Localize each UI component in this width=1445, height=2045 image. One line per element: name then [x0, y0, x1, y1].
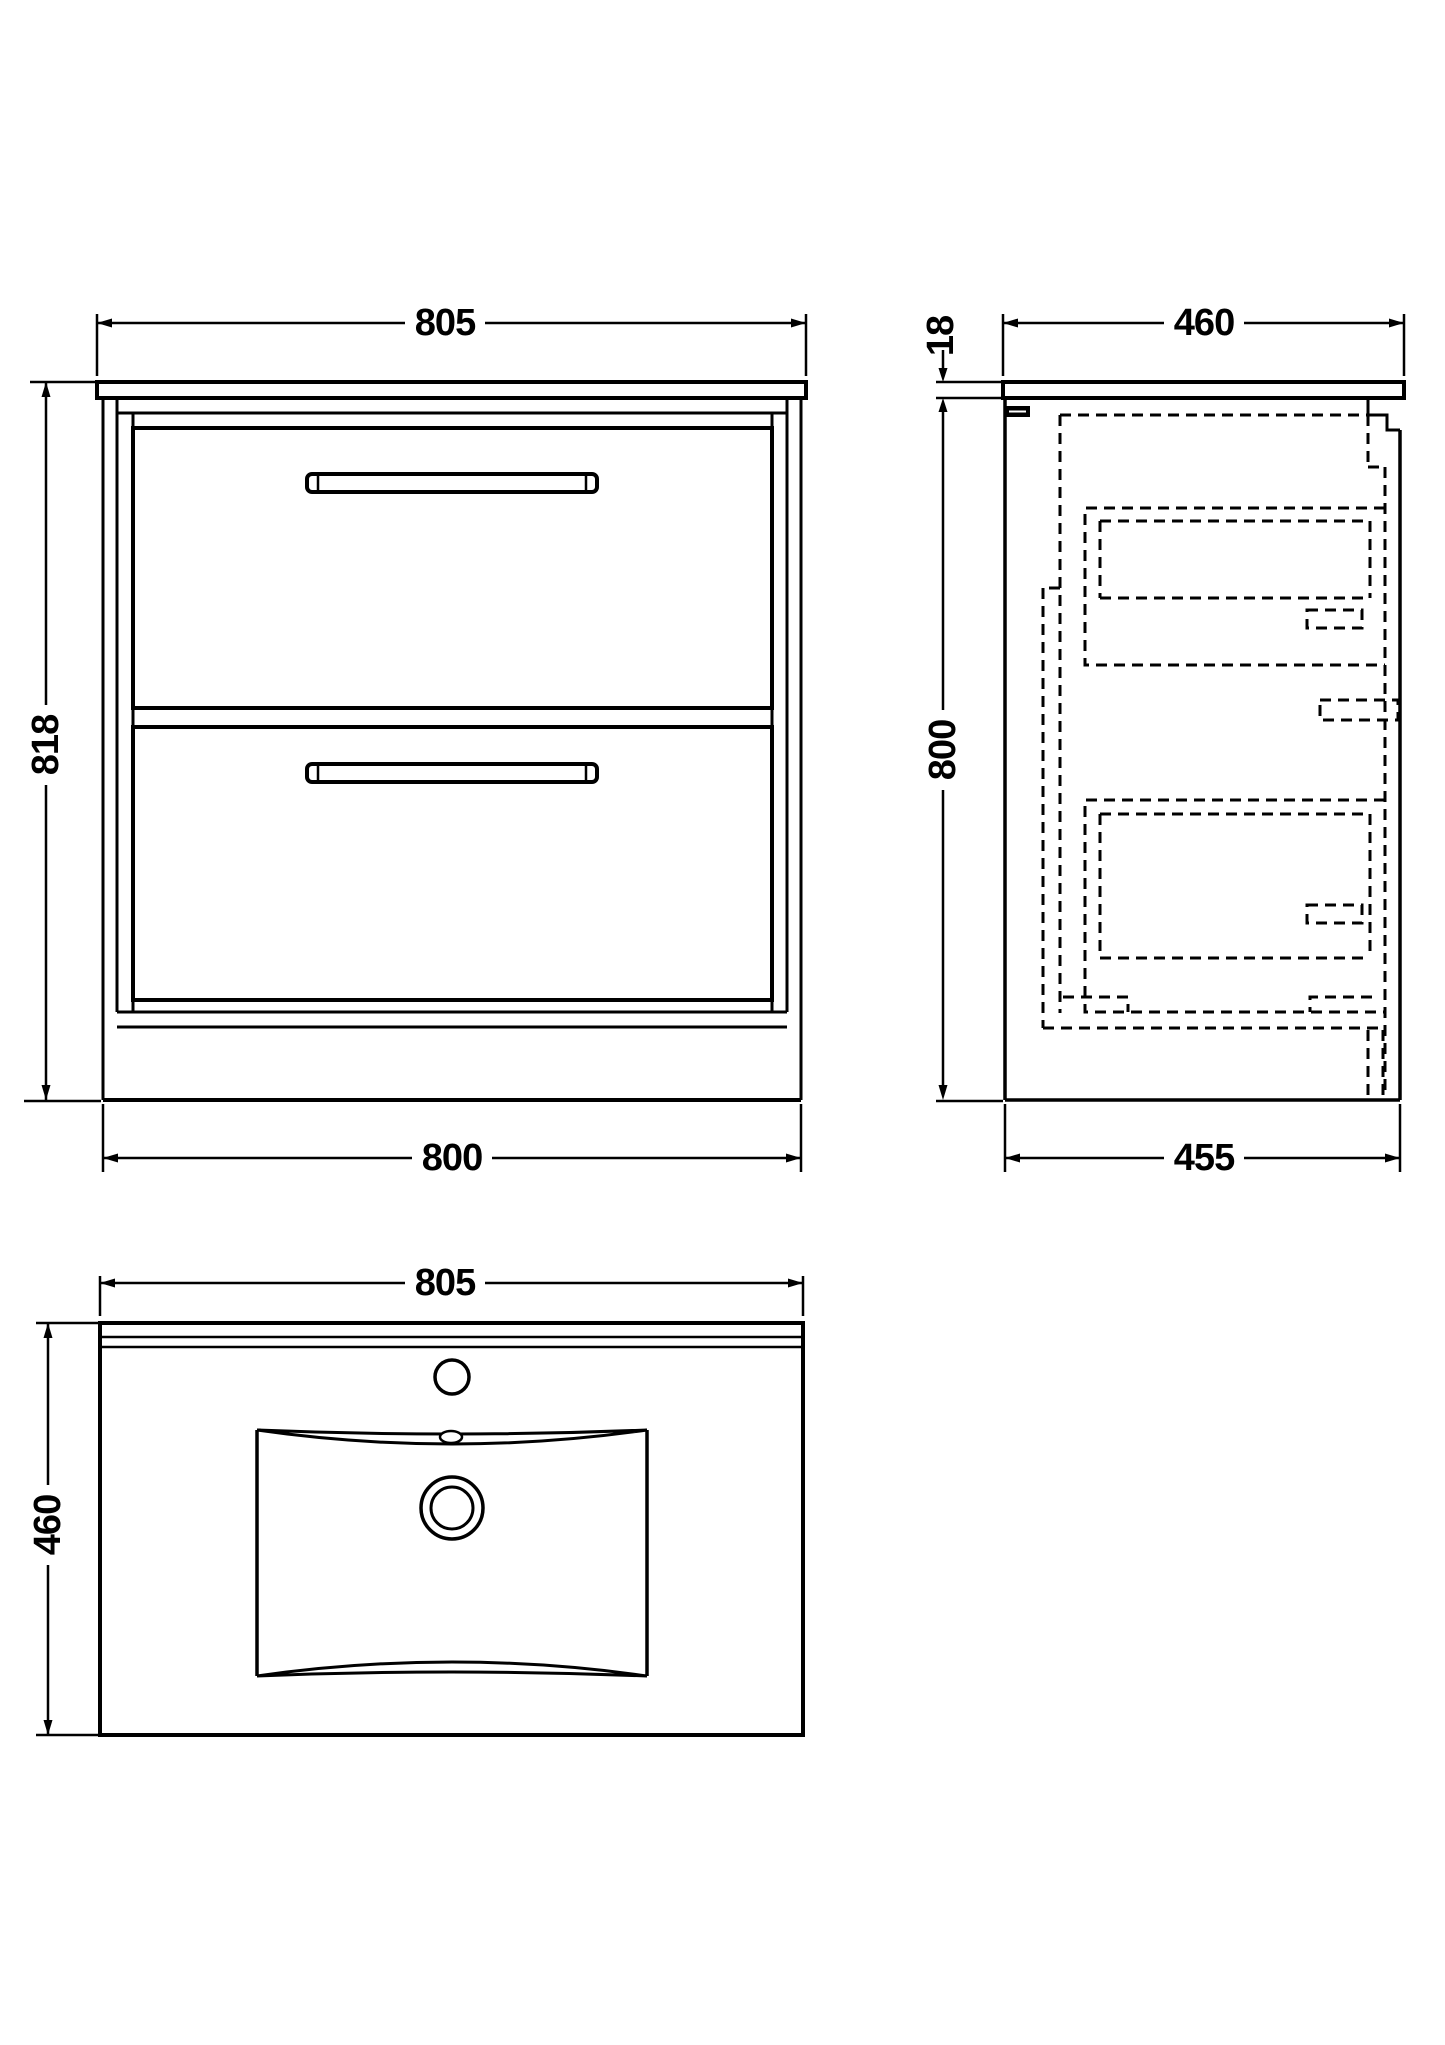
dim-plan-width: 805	[100, 1262, 803, 1316]
dim-label-side-counter-thickness: 18	[920, 316, 962, 356]
side-view: 18 460 800 455	[920, 302, 1404, 1179]
dim-label-side-bottom-depth: 455	[1174, 1137, 1235, 1179]
front-countertop	[97, 382, 806, 398]
front-drawer-2-handle	[307, 764, 597, 782]
side-drawer-runner-1	[1307, 610, 1362, 628]
dim-plan-depth: 460	[27, 1323, 98, 1735]
plan-back-ledge	[100, 1337, 803, 1347]
dim-side-height: 800	[922, 398, 1003, 1101]
dim-front-bottom-width: 800	[103, 1104, 801, 1179]
side-countertop	[1003, 382, 1404, 398]
front-view: 805 818 800	[24, 302, 806, 1179]
technical-drawing-canvas: 805 818 800	[0, 0, 1445, 2045]
front-drawer-1-handle	[307, 474, 597, 492]
dim-side-bottom-depth: 455	[1005, 1104, 1400, 1179]
side-rear-foot	[1368, 1030, 1383, 1097]
side-base-bracket-right	[1310, 997, 1372, 1012]
dim-label-front-top-width: 805	[415, 302, 476, 344]
dim-label-front-height: 818	[25, 715, 67, 775]
dim-label-plan-depth: 460	[27, 1495, 69, 1555]
dim-label-plan-width: 805	[415, 1262, 476, 1304]
side-drawer-runner-2	[1307, 905, 1362, 923]
side-drawer-box-2	[1085, 800, 1385, 1012]
plan-waste-drain	[421, 1477, 483, 1539]
dim-side-top-depth: 460	[1003, 302, 1404, 376]
dim-front-height: 818	[24, 382, 101, 1101]
side-wall-bracket	[1368, 398, 1400, 430]
front-drawer-1	[133, 428, 772, 708]
dim-label-side-top-depth: 460	[1174, 302, 1234, 344]
front-drawer-2	[133, 727, 772, 1000]
dim-front-top-width: 805	[97, 302, 806, 376]
dim-side-counter-thickness: 18	[920, 316, 1001, 398]
side-internal-structure	[1043, 415, 1398, 1097]
front-cabinet-outline	[103, 398, 801, 1100]
dim-label-side-height: 800	[922, 720, 964, 780]
side-base-bracket-left	[1063, 997, 1128, 1012]
side-cabinet-outline	[1005, 398, 1400, 1100]
plan-view: 805 460	[27, 1262, 803, 1735]
side-fixing-clip	[1006, 406, 1030, 417]
dim-label-front-bottom-width: 800	[422, 1137, 482, 1179]
plan-basin-bowl	[257, 1430, 647, 1676]
side-drawer-box-1	[1085, 508, 1385, 665]
plan-tap-hole	[435, 1360, 469, 1394]
plan-overflow-hole	[440, 1431, 462, 1443]
